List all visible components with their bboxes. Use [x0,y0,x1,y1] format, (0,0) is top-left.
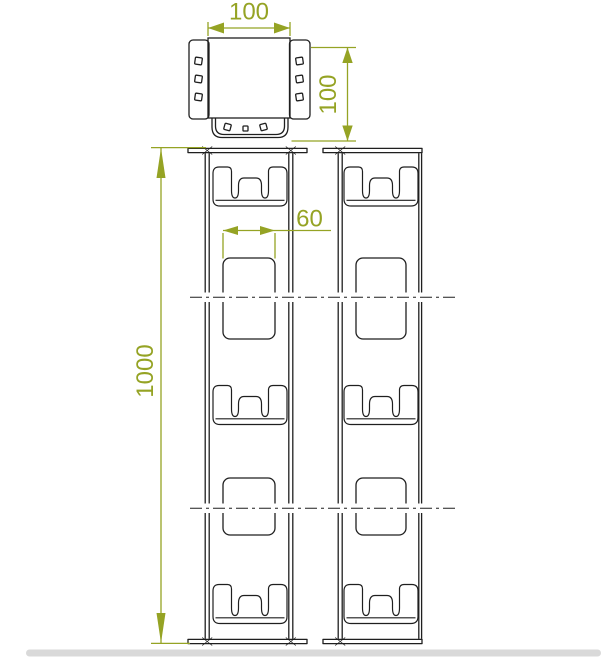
punch-hole [260,123,268,131]
dimension-labels: 100 100 60 1000 [132,0,353,643]
dim-slot-width-lines [223,231,331,259]
arrowhead-up [342,48,352,64]
punch-hole [224,123,232,131]
punch-hole [296,75,304,83]
punch-hole [195,57,203,65]
crown-slot-cutout [213,167,287,206]
technical-drawing-canvas: 100 100 60 1000 [0,0,608,663]
technical-drawing-page: 100 100 60 1000 [0,0,608,663]
crown-slot-cutout [213,386,287,425]
dim-label-length: 1000 [132,344,159,397]
punch-hole [195,93,203,101]
punch-hole [243,126,248,131]
arrowhead-down [342,126,352,142]
crown-slot-cutout [344,167,418,206]
front-view-right-rail [323,147,422,646]
dim-label-top-width: 100 [229,0,269,26]
bottom-cap-inner [216,118,285,135]
dim-label-top-height: 100 [315,74,342,114]
arrowhead-left [208,23,224,34]
break-lines [190,297,455,508]
crown-slot-cutout [213,585,287,624]
dim-length-lines [151,148,206,644]
punch-hole [296,93,304,101]
crown-slot-cutout [344,585,418,624]
top-view-cross-section [189,38,310,138]
arrowhead-up [157,148,166,178]
right-flange-plate [290,40,311,119]
horizontal-scrollbar-thumb[interactable] [26,650,601,657]
dim-label-slot-width: 60 [296,206,323,233]
front-view-left-rail [188,147,307,646]
drawing-linework [188,38,422,646]
punch-hole [296,57,304,65]
crown-slot-cutout [344,386,418,425]
arrowhead-right [260,226,275,235]
punch-hole [195,75,203,83]
arrowhead-right [274,23,290,34]
arrowhead-left [223,226,238,235]
channel-body [208,38,290,118]
arrowhead-down [157,613,166,643]
left-flange-plate [189,40,209,119]
